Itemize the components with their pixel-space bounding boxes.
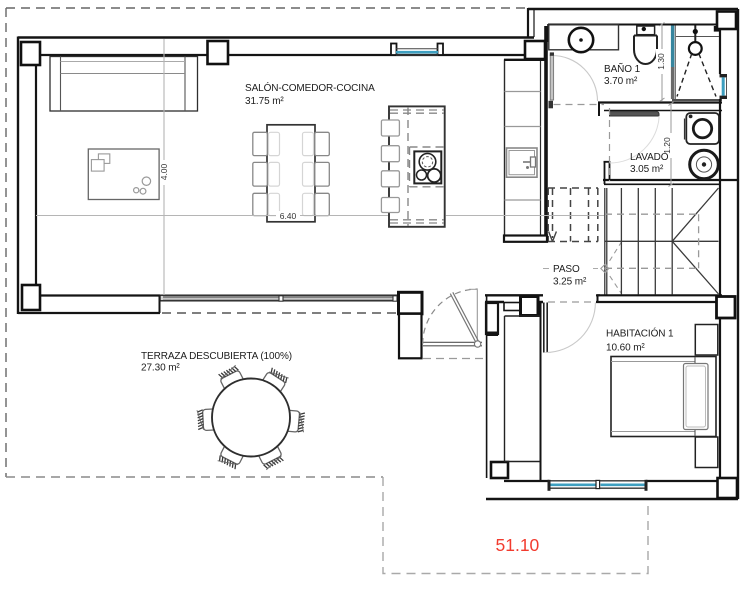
svg-text:LAVADO: LAVADO	[630, 152, 669, 163]
svg-text:10.60 m²: 10.60 m²	[606, 343, 645, 354]
svg-text:SALÓN-COMEDOR-COCINA: SALÓN-COMEDOR-COCINA	[245, 81, 375, 94]
svg-text:3.05 m²: 3.05 m²	[630, 164, 664, 175]
svg-text:BAÑO 1: BAÑO 1	[604, 62, 641, 75]
svg-text:1.30: 1.30	[656, 53, 666, 70]
svg-text:PASO: PASO	[553, 264, 580, 275]
svg-text:3.70 m²: 3.70 m²	[604, 76, 638, 87]
svg-text:31.75 m²: 31.75 m²	[245, 96, 284, 107]
svg-text:HABITACIÓN 1: HABITACIÓN 1	[606, 327, 674, 340]
svg-text:4.00: 4.00	[159, 163, 169, 180]
svg-text:TERRAZA DESCUBIERTA (100%): TERRAZA DESCUBIERTA (100%)	[141, 351, 292, 362]
svg-text:6.40: 6.40	[280, 211, 297, 221]
svg-text:3.25 m²: 3.25 m²	[553, 277, 587, 288]
svg-text:51.10: 51.10	[496, 535, 540, 555]
svg-text:27.30 m²: 27.30 m²	[141, 363, 180, 374]
